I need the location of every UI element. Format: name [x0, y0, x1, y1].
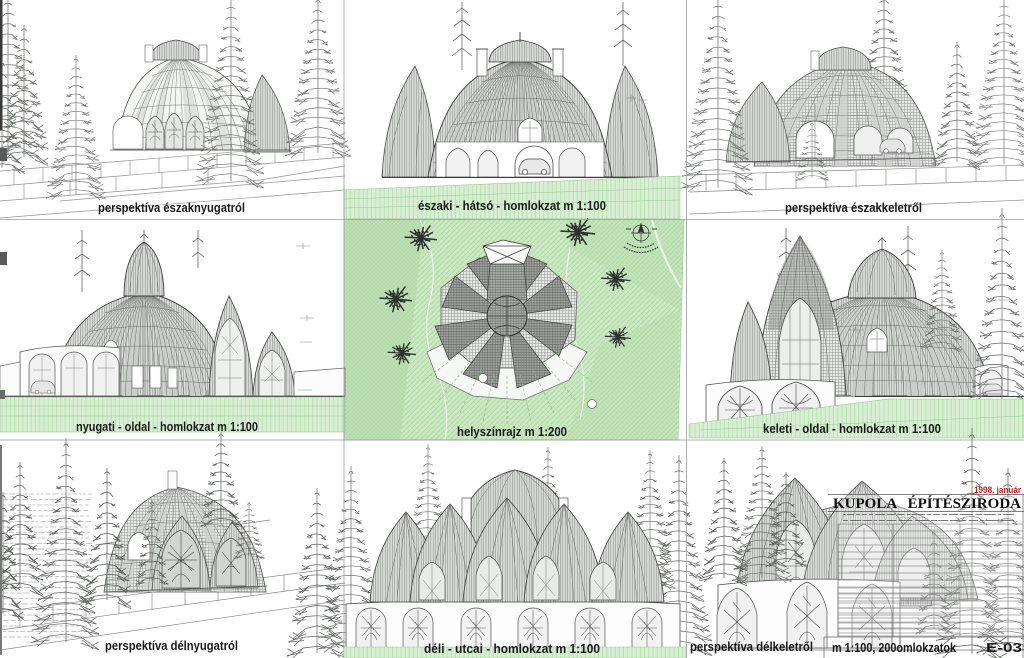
svg-text:m 1:100, 200omlokzatok: m 1:100, 200omlokzatok [832, 641, 956, 655]
svg-text:E-03: E-03 [986, 641, 1022, 655]
svg-text:perspektíva délkeletről: perspektíva délkeletről [690, 640, 813, 654]
svg-text:perspektíva északkeletről: perspektíva északkeletről [785, 201, 922, 215]
svg-text:északi - hátsó - homlokzat m 1: északi - hátsó - homlokzat m 1:100 [418, 199, 606, 213]
svg-text:keleti - oldal - homlokzat m 1: keleti - oldal - homlokzat m 1:100 [763, 422, 941, 436]
svg-text:helyszínrajz m 1:200: helyszínrajz m 1:200 [457, 425, 567, 439]
svg-text:perspektíva délnyugatról: perspektíva délnyugatról [105, 639, 238, 653]
svg-text:1998. január: 1998. január [974, 485, 1021, 495]
svg-text:KUPOLA ÉPÍTÉSZIRODA: KUPOLA ÉPÍTÉSZIRODA [833, 495, 1022, 512]
svg-text:déli - utcai - homlokzat m 1:1: déli - utcai - homlokzat m 1:100 [424, 642, 600, 656]
svg-text:nyugati - oldal - homlokzat m: nyugati - oldal - homlokzat m 1:100 [76, 420, 258, 434]
svg-text:perspektíva északnyugatról: perspektíva északnyugatról [98, 201, 245, 215]
